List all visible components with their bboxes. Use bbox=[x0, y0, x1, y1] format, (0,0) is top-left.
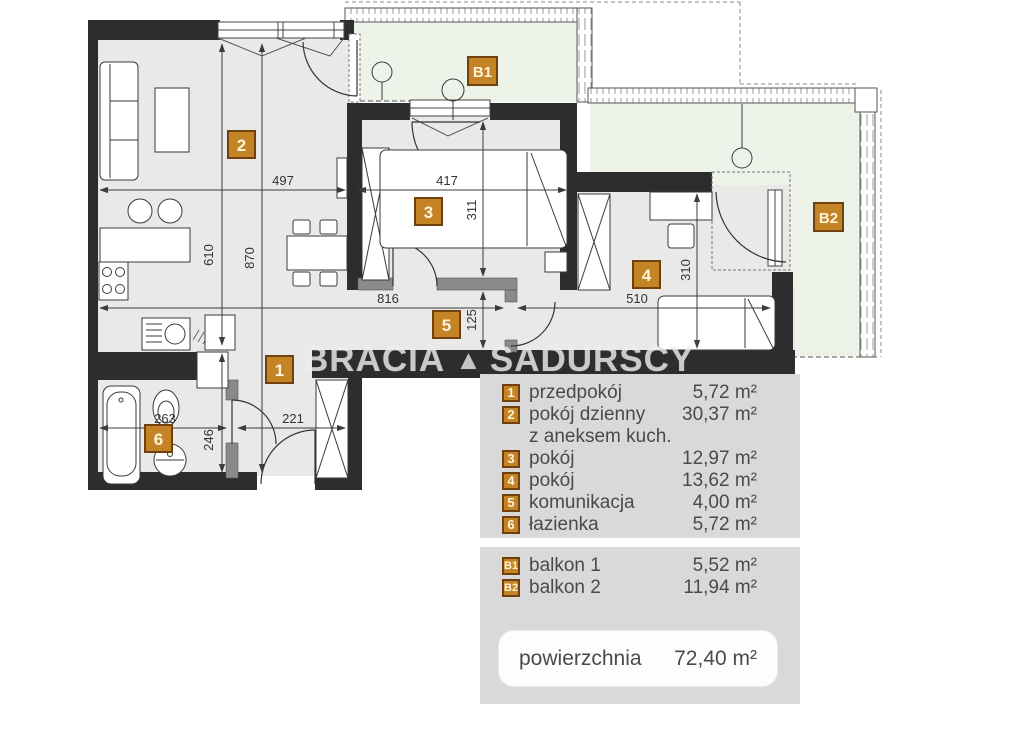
dim-corridor-depth: 125 bbox=[464, 309, 479, 331]
bed-room3 bbox=[380, 150, 567, 248]
floor-plan-page: 497 417 816 510 263 221 610 870 311 125 … bbox=[0, 0, 1028, 737]
legend-room-label: pokój bbox=[529, 448, 662, 470]
legend-badge-3: 3 bbox=[502, 450, 520, 468]
svg-text:B1: B1 bbox=[473, 64, 492, 81]
legend-balconies-panel: B1 balkon 1 5,52 m² B2 balkon 2 11,94 m²… bbox=[480, 547, 800, 704]
svg-text:5: 5 bbox=[442, 316, 451, 335]
legend-row: 2 pokój dzienny 30,37 m² bbox=[502, 404, 757, 426]
dim-room4-width: 510 bbox=[626, 291, 648, 306]
wardrobe-room4 bbox=[578, 194, 610, 290]
stool bbox=[158, 199, 182, 223]
legend-room-label: łazienka bbox=[529, 514, 662, 536]
badge-room-1: 1 bbox=[266, 356, 293, 383]
sofa bbox=[100, 62, 138, 180]
coffee-table bbox=[155, 88, 189, 152]
legend-row: B1 balkon 1 5,52 m² bbox=[502, 555, 757, 577]
legend-room-area: 4,00 m² bbox=[662, 492, 757, 514]
legend-room-label: pokój bbox=[529, 470, 662, 492]
washing-machine bbox=[197, 352, 228, 388]
badge-room-5: 5 bbox=[433, 311, 460, 338]
legend-badge-4: 4 bbox=[502, 472, 520, 490]
legend-room-label: komunikacja bbox=[529, 492, 662, 514]
legend-balcony-area: 5,52 m² bbox=[662, 555, 757, 577]
dim-living-width: 497 bbox=[272, 173, 294, 188]
legend-badge-2: 2 bbox=[502, 406, 520, 424]
legend-rooms-panel: 1 przedpokój 5,72 m² 2 pokój dzienny 30,… bbox=[480, 374, 800, 538]
svg-text:2: 2 bbox=[237, 136, 246, 155]
svg-text:3: 3 bbox=[424, 203, 433, 222]
nightstand bbox=[545, 252, 567, 272]
badge-room-3: 3 bbox=[415, 198, 442, 225]
badge-balcony-2: B2 bbox=[814, 203, 843, 231]
legend-row: 3 pokój 12,97 m² bbox=[502, 448, 757, 470]
svg-text:1: 1 bbox=[275, 361, 284, 380]
legend-row: B2 balkon 2 11,94 m² bbox=[502, 577, 757, 599]
total-area-label: powierzchnia bbox=[519, 647, 642, 671]
chair-room4 bbox=[668, 224, 694, 248]
legend-badge-1: 1 bbox=[502, 384, 520, 402]
svg-text:4: 4 bbox=[642, 266, 652, 285]
legend-badge-b1: B1 bbox=[502, 557, 520, 575]
dim-living-depth: 610 bbox=[201, 244, 216, 266]
legend-room-label: pokój dzienny bbox=[529, 404, 662, 426]
dim-room3-depth: 311 bbox=[464, 200, 479, 221]
dim-room4-depth: 310 bbox=[678, 259, 693, 281]
legend-badge-5: 5 bbox=[502, 494, 520, 512]
sliding-door-pocket bbox=[349, 34, 360, 102]
badge-room-4: 4 bbox=[633, 261, 660, 288]
radiator bbox=[337, 158, 347, 198]
badge-balcony-1: B1 bbox=[468, 57, 497, 85]
dim-left-depth: 870 bbox=[242, 247, 257, 269]
svg-text:6: 6 bbox=[154, 430, 163, 449]
stool bbox=[128, 199, 152, 223]
badge-room-2: 2 bbox=[228, 131, 255, 158]
legend-badge-6: 6 bbox=[502, 516, 520, 534]
legend-room-area: 5,72 m² bbox=[662, 382, 757, 404]
legend-room-area: 12,97 m² bbox=[662, 448, 757, 470]
legend-badge-b2: B2 bbox=[502, 579, 520, 597]
legend-room-label: przedpokój bbox=[529, 382, 662, 404]
legend-row: z aneksem kuch. bbox=[502, 426, 757, 448]
kitchen-sink bbox=[142, 318, 190, 350]
legend-balcony-area: 11,94 m² bbox=[662, 577, 757, 599]
dim-bath-width: 263 bbox=[154, 411, 176, 426]
legend-room-area: 30,37 m² bbox=[662, 404, 757, 426]
legend-balcony-label: balkon 1 bbox=[529, 555, 662, 577]
wardrobe-hall bbox=[316, 380, 348, 478]
kitchen-counter bbox=[100, 228, 190, 262]
legend-row: 4 pokój 13,62 m² bbox=[502, 470, 757, 492]
bed-room4 bbox=[658, 296, 775, 350]
total-area-value: 72,40 m² bbox=[674, 647, 757, 671]
dim-hall-depth: 246 bbox=[201, 429, 216, 451]
bathtub bbox=[103, 386, 140, 484]
total-area-box: powierzchnia 72,40 m² bbox=[498, 630, 778, 687]
legend-row: 5 komunikacja 4,00 m² bbox=[502, 492, 757, 514]
legend-balcony-label: balkon 2 bbox=[529, 577, 662, 599]
dim-room3-width: 417 bbox=[436, 173, 458, 188]
svg-text:B2: B2 bbox=[819, 210, 838, 227]
dim-corridor-width: 816 bbox=[377, 291, 399, 306]
badge-room-6: 6 bbox=[145, 425, 172, 452]
legend-room-area: 5,72 m² bbox=[662, 514, 757, 536]
legend-room-area: 13,62 m² bbox=[662, 470, 757, 492]
legend-room-label-continued: z aneksem kuch. bbox=[529, 426, 672, 448]
legend-row: 6 łazienka 5,72 m² bbox=[502, 514, 757, 536]
legend-row: 1 przedpokój 5,72 m² bbox=[502, 382, 757, 404]
dim-hall-width: 221 bbox=[282, 411, 304, 426]
fridge bbox=[205, 315, 235, 350]
desk-room4 bbox=[650, 192, 712, 220]
stove bbox=[99, 262, 128, 300]
